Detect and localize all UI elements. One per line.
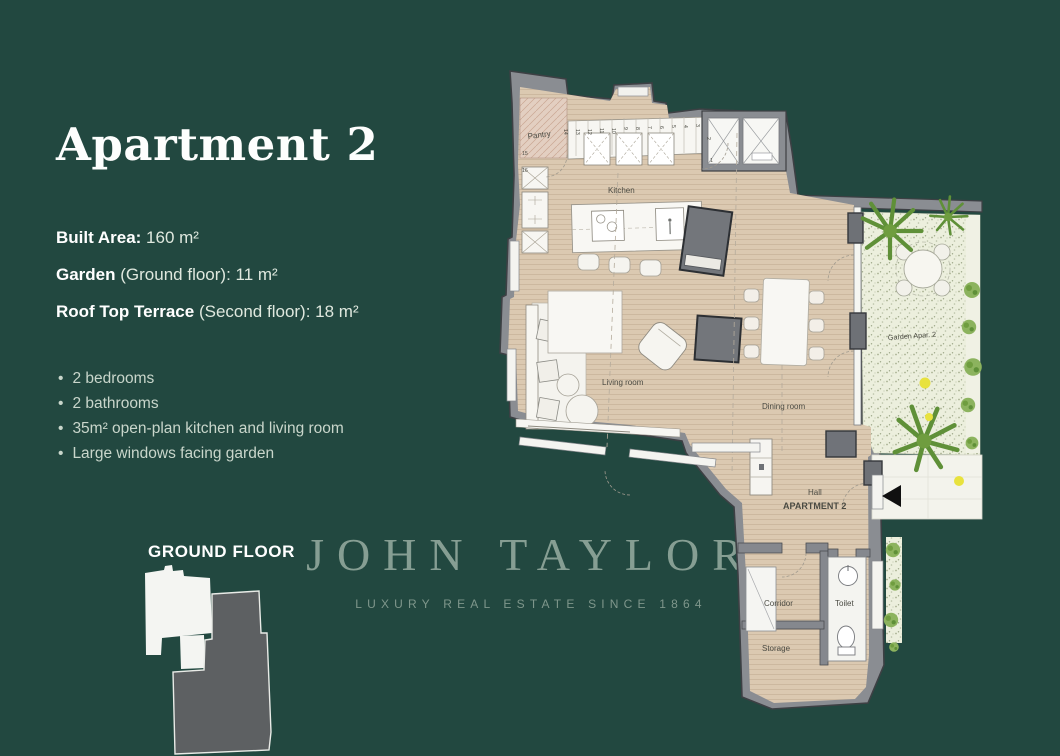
spec-list: Built Area: 160 m² Garden (Ground floor)… (56, 228, 359, 339)
garden-paved-path (872, 455, 982, 519)
brochure-page: Apartment 2 Built Area: 160 m² Garden (G… (0, 0, 1060, 756)
dining-room-label: Dining room (762, 402, 805, 411)
side-table (557, 374, 579, 396)
feature-list: 2 bedrooms 2 bathrooms 35m² open-plan ki… (58, 366, 344, 466)
svg-text:12: 12 (586, 129, 592, 135)
corridor-label: Corridor (764, 599, 793, 608)
wc-icon (838, 626, 856, 655)
dining-set (744, 278, 824, 366)
svg-text:3: 3 (694, 124, 700, 127)
apartment-label: APARTMENT 2 (783, 501, 846, 511)
svg-text:1: 1 (710, 158, 713, 164)
svg-text:14: 14 (562, 129, 568, 135)
coffee-table (548, 291, 622, 353)
storage-label: Storage (762, 644, 791, 653)
svg-text:4: 4 (682, 125, 688, 128)
feature-item: 2 bedrooms (58, 366, 344, 391)
hob-icon (592, 210, 625, 241)
svg-text:15: 15 (522, 151, 528, 157)
spec-garden: Garden (Ground floor): 11 m² (56, 265, 359, 285)
feature-item: 2 bathrooms (58, 391, 344, 416)
pantry-floor (520, 98, 567, 158)
floorplan-drawing: Pantry 14 13 12 11 10 9 (480, 55, 1000, 715)
toilet-label: Toilet (835, 599, 854, 608)
floor-level-label: GROUND FLOOR (148, 542, 295, 562)
toilet-room (828, 557, 866, 661)
svg-text:6: 6 (658, 126, 664, 129)
dining-table (761, 278, 810, 366)
key-plan-other-units (180, 635, 205, 669)
kitchen-tall-units (522, 167, 548, 253)
svg-text:7: 7 (646, 126, 652, 129)
key-plan-thumbnail (142, 562, 292, 756)
svg-text:5: 5 (670, 125, 676, 128)
hall-dark-unit (826, 431, 856, 457)
kitchen-label: Kitchen (608, 186, 635, 195)
bay-window (618, 87, 648, 96)
svg-text:13: 13 (574, 129, 580, 135)
spec-built-area: Built Area: 160 m² (56, 228, 359, 248)
living-room-label: Living room (602, 378, 644, 387)
svg-text:16: 16 (522, 168, 528, 174)
svg-text:10: 10 (610, 128, 616, 134)
spec-roof-terrace: Roof Top Terrace (Second floor): 18 m² (56, 302, 359, 322)
hall-label: Hall (808, 488, 822, 497)
feature-item: Large windows facing garden (58, 441, 344, 466)
tall-dark-unit (680, 206, 732, 276)
svg-text:9: 9 (622, 127, 628, 130)
svg-text:2: 2 (705, 137, 711, 140)
elevator-block (702, 111, 786, 171)
svg-text:8: 8 (634, 127, 640, 130)
garden-table-set (896, 242, 950, 296)
svg-text:11: 11 (598, 128, 604, 133)
page-title: Apartment 2 (56, 118, 378, 171)
feature-item: 35m² open-plan kitchen and living room (58, 416, 344, 441)
